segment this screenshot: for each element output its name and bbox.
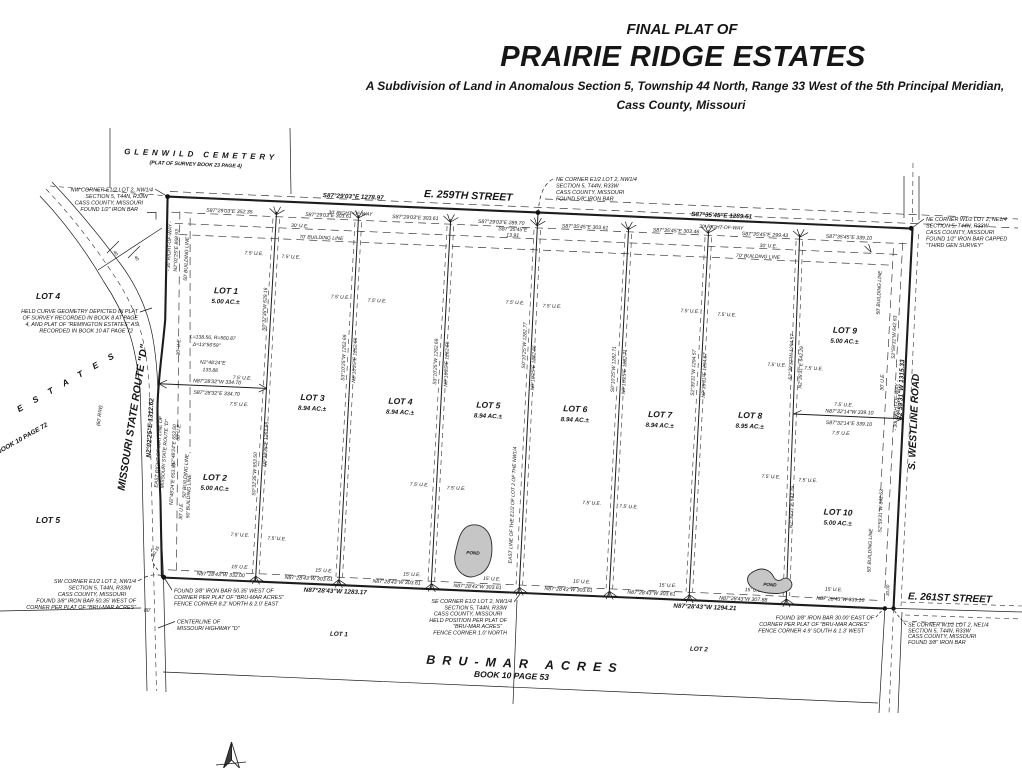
svg-text:7.5' U.E.: 7.5' U.E.	[543, 303, 562, 310]
svg-text:7.5' U.E.: 7.5' U.E.	[717, 312, 736, 319]
svg-text:8.94 AC.±: 8.94 AC.±	[386, 409, 415, 417]
svg-text:RECORDED IN BOOK 10 AT PAGE 72: RECORDED IN BOOK 10 AT PAGE 72	[39, 329, 133, 335]
svg-text:70' BUILDING LINE: 70' BUILDING LINE	[299, 234, 344, 242]
svg-text:S87°29'03"E 303.61: S87°29'03"E 303.61	[392, 214, 439, 222]
svg-text:FOUND 3/8" IRON BAR: FOUND 3/8" IRON BAR	[908, 640, 966, 646]
svg-text:7.5' U.E.: 7.5' U.E.	[506, 300, 525, 307]
svg-text:S2°59'31"W 642.63: S2°59'31"W 642.63	[891, 315, 899, 359]
svg-text:N0°10'25"E 1282.71: N0°10'25"E 1282.71	[621, 349, 629, 394]
svg-text:N3°10'25"E 1262.69: N3°10'25"E 1262.69	[351, 337, 359, 382]
svg-text:7.5' U.E.: 7.5' U.E.	[230, 532, 249, 539]
svg-text:7.5' U.E.: 7.5' U.E.	[267, 536, 286, 543]
svg-text:NW CORNER E1/2 LOT 2, NW1/4: NW CORNER E1/2 LOT 2, NW1/4	[71, 188, 153, 194]
svg-text:LOT 2: LOT 2	[690, 646, 709, 654]
svg-text:LOT 5: LOT 5	[36, 515, 60, 525]
svg-text:FOUND 1/2" IRON BAR CAPPED: FOUND 1/2" IRON BAR CAPPED	[926, 237, 1007, 243]
svg-text:15' U.E.: 15' U.E.	[825, 587, 843, 594]
svg-text:MISSOURI HIGHWAY "D": MISSOURI HIGHWAY "D"	[177, 626, 241, 632]
svg-text:50.35: 50.35	[151, 545, 161, 558]
svg-text:REMINGTON ESTATES: REMINGTON ESTATES	[0, 345, 126, 500]
svg-text:8.94 AC.±: 8.94 AC.±	[645, 422, 674, 430]
svg-text:30' U.E.: 30' U.E.	[291, 223, 309, 230]
svg-text:POND: POND	[466, 550, 480, 556]
svg-text:FOUND 5/8" IRON BAR: FOUND 5/8" IRON BAR	[556, 197, 614, 203]
svg-text:BOOK 10 PAGE 72: BOOK 10 PAGE 72	[0, 421, 49, 456]
svg-text:N87°28'43"W 1294.21: N87°28'43"W 1294.21	[673, 602, 737, 613]
svg-text:15' U.E.: 15' U.E.	[483, 576, 501, 583]
svg-text:N87°28'43"W 332.00: N87°28'43"W 332.00	[197, 571, 245, 579]
svg-text:7.5' U.E.: 7.5' U.E.	[244, 250, 263, 257]
svg-text:15' U.E.: 15' U.E.	[573, 579, 591, 586]
svg-text:5.00 AC.±: 5.00 AC.±	[823, 519, 852, 527]
svg-text:7.5' U.E.: 7.5' U.E.	[804, 365, 823, 372]
svg-text:8.95 AC.±: 8.95 AC.±	[735, 423, 764, 431]
svg-text:S3°10'25"W 1262.69: S3°10'25"W 1262.69	[432, 338, 440, 385]
svg-text:LOT 1: LOT 1	[330, 631, 349, 639]
svg-text:CASS COUNTY, MISSOURI: CASS COUNTY, MISSOURI	[58, 592, 127, 598]
svg-text:8.94 AC.±: 8.94 AC.±	[561, 416, 590, 424]
svg-text:CENTERLINE OF: CENTERLINE OF	[177, 620, 221, 626]
svg-text:S0°32'35"W 653.50: S0°32'35"W 653.50	[251, 452, 259, 496]
svg-text:7.5' U.E.: 7.5' U.E.	[410, 482, 429, 489]
svg-text:LOT 8: LOT 8	[738, 410, 763, 421]
svg-text:NE CORNER E1/2 LOT 2, NW1/4: NE CORNER E1/2 LOT 2, NW1/4	[556, 177, 637, 183]
svg-text:LOT 7: LOT 7	[648, 409, 674, 420]
svg-text:S87°35'45"E 303.61: S87°35'45"E 303.61	[562, 223, 609, 231]
svg-text:N2°39'31"E 642.29: N2°39'31"E 642.29	[788, 486, 796, 529]
svg-text:7.5' U.E.: 7.5' U.E.	[331, 294, 350, 301]
svg-text:N87°28'43"W 303.61: N87°28'43"W 303.61	[372, 579, 420, 587]
svg-text:LOT 1: LOT 1	[214, 285, 239, 296]
svg-text:15' U.E.: 15' U.E.	[659, 582, 677, 589]
svg-text:LOT 6: LOT 6	[563, 403, 588, 414]
svg-text:CORNER PER PLAT OF "BRU-MAR AC: CORNER PER PLAT OF "BRU-MAR ACRES"	[759, 622, 870, 628]
svg-text:CORNER PER PLAT OF "BRU-MAR AC: CORNER PER PLAT OF "BRU-MAR ACRES"	[174, 595, 285, 601]
svg-text:7.5' U.E.: 7.5' U.E.	[619, 504, 638, 511]
svg-text:7.5' U.E.: 7.5' U.E.	[447, 485, 466, 492]
svg-text:7.5' U.E.: 7.5' U.E.	[233, 375, 252, 382]
svg-text:S87°35'45"E 303.46: S87°35'45"E 303.46	[653, 227, 700, 235]
svg-text:BOOK 10 PAGE 53: BOOK 10 PAGE 53	[474, 669, 550, 682]
svg-text:E. 259TH STREET: E. 259TH STREET	[424, 188, 515, 204]
svg-text:S2°59'31"W 1315.33: S2°59'31"W 1315.33	[896, 359, 907, 421]
svg-text:N0°32'35"E 1262.66: N0°32'35"E 1262.66	[262, 422, 270, 467]
svg-text:8.94 AC.±: 8.94 AC.±	[298, 405, 327, 413]
svg-text:EAST LINE OF THE E1/2 OF LOT 2: EAST LINE OF THE E1/2 OF LOT 2 OF THE NW…	[508, 446, 519, 563]
svg-text:4, AND PLAT OF "REMINGTON ESTA: 4, AND PLAT OF "REMINGTON ESTATES" AS	[25, 322, 138, 328]
svg-text:N87°28'43"W 339.10: N87°28'43"W 339.10	[816, 596, 864, 604]
svg-text:7.5' U.E.: 7.5' U.E.	[680, 308, 699, 315]
svg-text:50' BUILDING LINE: 50' BUILDING LINE	[876, 270, 884, 315]
svg-text:A Subdivision of Land in Anoma: A Subdivision of Land in Anomalous Secti…	[365, 79, 1005, 93]
svg-text:FOUND 3/8" IRON BAR 50.35' WES: FOUND 3/8" IRON BAR 50.35' WEST OF	[36, 599, 136, 605]
svg-text:L=138.56, R=560.87: L=138.56, R=560.87	[190, 334, 236, 342]
svg-text:5.00 AC.±: 5.00 AC.±	[211, 298, 240, 306]
svg-text:13.91: 13.91	[506, 233, 519, 240]
svg-text:N87°28'43"W 303.61: N87°28'43"W 303.61	[285, 575, 333, 583]
svg-text:7.5' U.E.: 7.5' U.E.	[767, 362, 786, 369]
svg-text:S2°39'31"W 1294.57: S2°39'31"W 1294.57	[690, 349, 698, 396]
svg-text:50' BUILDING LINE: 50' BUILDING LINE	[867, 528, 875, 573]
svg-text:Cass County, Missouri: Cass County, Missouri	[617, 98, 747, 112]
svg-text:"THIRD GEN SURVEY": "THIRD GEN SURVEY"	[926, 243, 984, 249]
svg-text:S0°32'35"W 629.16: S0°32'35"W 629.16	[261, 287, 269, 331]
svg-text:MISSOURI STATE ROUTE "D": MISSOURI STATE ROUTE "D"	[116, 343, 151, 492]
svg-text:CASS COUNTY, MISSOURI: CASS COUNTY, MISSOURI	[556, 190, 625, 196]
svg-text:15' U.E.: 15' U.E.	[231, 564, 249, 571]
svg-text:30.00: 30.00	[885, 584, 890, 596]
svg-text:133.88: 133.88	[202, 367, 218, 374]
svg-text:7.5' U.E.: 7.5' U.E.	[368, 298, 387, 305]
svg-text:7.5' U.E.: 7.5' U.E.	[761, 474, 780, 481]
svg-text:7.5' U.E.: 7.5' U.E.	[582, 500, 601, 507]
svg-text:N2°48'24"E 653.50: N2°48'24"E 653.50	[169, 462, 178, 505]
svg-text:FOUND 3/8" IRON BAR 50.35' WES: FOUND 3/8" IRON BAR 50.35' WEST OF	[174, 589, 274, 595]
svg-text:NE CORNER W1/2 LOT 2, NE1/4: NE CORNER W1/2 LOT 2, NE1/4	[926, 217, 1007, 223]
svg-text:S. WESTLINE ROAD: S. WESTLINE ROAD	[907, 374, 922, 471]
svg-text:LOT 4: LOT 4	[388, 396, 413, 407]
svg-text:7.5' U.E.: 7.5' U.E.	[229, 401, 248, 408]
svg-text:SECTION 5, T44N, R33W: SECTION 5, T44N, R33W	[556, 184, 620, 190]
svg-text:7.5' U.E.: 7.5' U.E.	[832, 430, 851, 437]
svg-text:S87°29'03"E 352.35: S87°29'03"E 352.35	[206, 208, 253, 216]
svg-text:N0°10'25"E 1282.66: N0°10'25"E 1282.66	[530, 345, 538, 390]
svg-text:FENCE CORNER 4.9' SOUTH & 1.3': FENCE CORNER 4.9' SOUTH & 1.3' WEST	[758, 629, 864, 635]
svg-text:SECTION 5, T44N, R33W: SECTION 5, T44N, R33W	[444, 605, 508, 611]
svg-text:S87°29'03"E 1278.97: S87°29'03"E 1278.97	[323, 191, 385, 202]
svg-text:30' U.E.: 30' U.E.	[176, 338, 183, 356]
svg-text:SECTION 5, T44N, R33W: SECTION 5, T44N, R33W	[68, 586, 132, 592]
svg-text:FOUND 1/2" IRON BAR: FOUND 1/2" IRON BAR	[80, 207, 138, 213]
svg-text:CASS COUNTY, MISSOURI: CASS COUNTY, MISSOURI	[434, 612, 503, 618]
svg-text:FENCE CORNER 8.2' NORTH & 2.0': FENCE CORNER 8.2' NORTH & 2.0' EAST	[174, 602, 279, 608]
svg-text:7.5' U.E.: 7.5' U.E.	[834, 402, 853, 409]
svg-text:Δ=13°56'59": Δ=13°56'59"	[192, 342, 221, 349]
svg-text:HELD CURVE GEOMETRY DEPICTED I: HELD CURVE GEOMETRY DEPICTED IN PLAT	[21, 309, 139, 315]
svg-text:OF SURVEY RECORDED IN BOOK 8 A: OF SURVEY RECORDED IN BOOK 8 AT PAGE	[22, 316, 138, 322]
svg-text:40: 40	[133, 255, 140, 262]
svg-text:8.94 AC.±: 8.94 AC.±	[474, 412, 503, 420]
svg-text:LOT 9: LOT 9	[833, 325, 858, 336]
svg-text:SW CORNER E1/2 LOT 2, NW1/4: SW CORNER E1/2 LOT 2, NW1/4	[54, 579, 136, 585]
svg-text:30' U.E.: 30' U.E.	[759, 243, 777, 250]
svg-text:7.5' U.E.: 7.5' U.E.	[798, 477, 817, 484]
svg-text:HELD POSITION PER PLAT OF: HELD POSITION PER PLAT OF	[429, 618, 507, 624]
svg-text:SE CORNER E1/2 LOT 2, NW1/4: SE CORNER E1/2 LOT 2, NW1/4	[431, 599, 512, 605]
svg-text:(60' R/W): (60' R/W)	[96, 405, 105, 427]
svg-text:(PLAT OF SURVEY BOOK 23 PAGE 4: (PLAT OF SURVEY BOOK 23 PAGE 4)	[149, 160, 242, 170]
svg-text:S3°10'25"W 1262.69: S3°10'25"W 1262.69	[340, 334, 348, 381]
svg-text:"BRU-MAR ACRES": "BRU-MAR ACRES"	[453, 624, 503, 630]
svg-text:30' U.E.: 30' U.E.	[178, 502, 185, 520]
svg-text:FINAL PLAT OF: FINAL PLAT OF	[626, 21, 738, 38]
svg-text:CASS COUNTY, MISSOURI: CASS COUNTY, MISSOURI	[926, 230, 995, 236]
svg-text:S87°35'45"E 299.43: S87°35'45"E 299.43	[742, 231, 789, 239]
svg-text:SECTION 5, T44N, R33W: SECTION 5, T44N, R33W	[85, 194, 149, 200]
svg-text:S2°59'31"W 642.63: S2°59'31"W 642.63	[877, 489, 885, 533]
svg-text:70' BUILDING LINE: 70' BUILDING LINE	[736, 253, 781, 261]
svg-text:40: 40	[112, 250, 119, 257]
svg-text:N2°39'31"E 1294.57: N2°39'31"E 1294.57	[701, 352, 709, 397]
svg-text:30' U.E.: 30' U.E.	[175, 423, 182, 441]
svg-text:80': 80'	[144, 608, 152, 614]
svg-text:LOT 3: LOT 3	[300, 392, 325, 403]
svg-text:S0°10'25"W 1282.71: S0°10'25"W 1282.71	[610, 346, 618, 393]
svg-text:POND: POND	[763, 582, 777, 588]
svg-text:LOT 10: LOT 10	[823, 506, 852, 517]
svg-text:GLENWILD CEMETERY: GLENWILD CEMETERY	[124, 147, 278, 162]
svg-text:SECTION 5, T44N, R33W: SECTION 5, T44N, R33W	[926, 224, 990, 230]
svg-text:5.00 AC.±: 5.00 AC.±	[830, 338, 859, 346]
svg-text:7.5' U.E.: 7.5' U.E.	[281, 254, 300, 261]
svg-text:S87°32'14"E 339.10: S87°32'14"E 339.10	[826, 420, 873, 428]
svg-text:N87°28'43"W 303.61: N87°28'43"W 303.61	[544, 586, 592, 594]
svg-text:FENCE CORNER 1.0' NORTH: FENCE CORNER 1.0' NORTH	[433, 631, 507, 637]
svg-text:N87°28'43"W 303.61: N87°28'43"W 303.61	[627, 590, 675, 598]
svg-text:N2°02'25"E 1312.62: N2°02'25"E 1312.62	[144, 398, 155, 458]
svg-text:30' U.E.: 30' U.E.	[879, 373, 886, 391]
svg-text:LOT 2: LOT 2	[203, 472, 228, 483]
svg-text:FOUND 3/8" IRON BAR 30.00' EAS: FOUND 3/8" IRON BAR 30.00' EAST OF	[776, 616, 875, 622]
svg-text:LOT 4: LOT 4	[36, 291, 60, 301]
svg-text:15' U.E.: 15' U.E.	[403, 571, 421, 578]
svg-text:N2°48'24"E: N2°48'24"E	[200, 360, 226, 367]
svg-text:N0°10'25"E 1262.69: N0°10'25"E 1262.69	[443, 341, 451, 386]
svg-text:5.00 AC.±: 5.00 AC.±	[200, 485, 229, 493]
svg-text:S0°10'25"W 1282.77: S0°10'25"W 1282.77	[521, 322, 529, 369]
svg-text:30' RIGHT-OF-WAY: 30' RIGHT-OF-WAY	[699, 224, 744, 232]
svg-text:S87°35'45"E 339.10: S87°35'45"E 339.10	[826, 234, 873, 242]
svg-text:LOT 5: LOT 5	[476, 399, 501, 410]
svg-text:CASS COUNTY, MISSOURI: CASS COUNTY, MISSOURI	[75, 201, 144, 207]
svg-text:15' U.E.: 15' U.E.	[315, 568, 333, 575]
svg-text:PRAIRIE RIDGE ESTATES: PRAIRIE RIDGE ESTATES	[500, 41, 866, 73]
svg-text:S87°28'32"E 334.70: S87°28'32"E 334.70	[193, 390, 240, 398]
svg-text:50' BUILDING LINE: 50' BUILDING LINE	[183, 236, 191, 281]
